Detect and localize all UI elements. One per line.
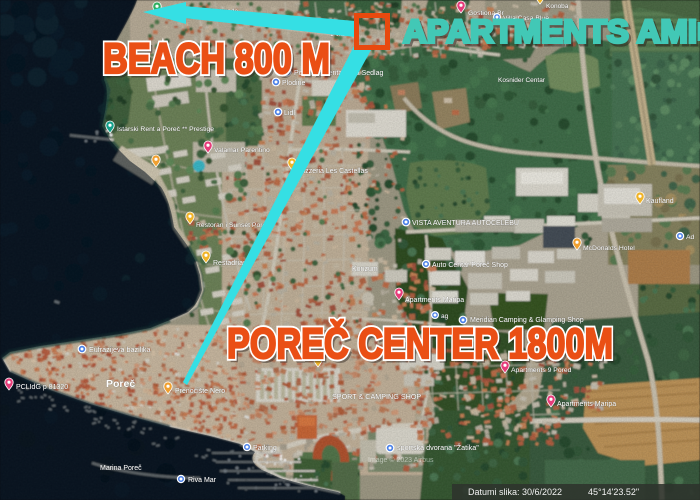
svg-text:Konoba: Konoba — [546, 3, 569, 10]
svg-text:Valamar Parentino: Valamar Parentino — [214, 147, 270, 154]
svg-text:Riva Mar: Riva Mar — [188, 477, 217, 484]
svg-text:Konzum: Konzum — [352, 266, 378, 273]
svg-text:APARTMENTS AMI: APARTMENTS AMI — [403, 14, 697, 50]
svg-text:Ad: Ad — [686, 234, 695, 241]
svg-text:VISTA AVENTURA AUTOCELEBU: VISTA AVENTURA AUTOCELEBU — [412, 220, 519, 227]
svg-text:Eufrazijeva bazilika: Eufrazijeva bazilika — [89, 345, 151, 354]
svg-text:Pizzeria Les Castellas: Pizzeria Les Castellas — [299, 168, 368, 175]
svg-text:45°14'23.52": 45°14'23.52" — [588, 487, 639, 497]
svg-text:Marina Poreč: Marina Poreč — [100, 465, 142, 472]
svg-text:Istarski Rent a Poreč ** Pres: Istarski Rent a Poreč ** Prestige — [117, 126, 214, 133]
svg-text:Kosnider Centar: Kosnider Centar — [498, 77, 546, 84]
svg-text:sportska dvorana "Žatika": sportska dvorana "Žatika" — [397, 443, 479, 452]
svg-text:Prenoćište Nero: Prenoćište Nero — [175, 388, 225, 395]
svg-text:Apartments Maripa: Apartments Maripa — [405, 297, 464, 304]
svg-text:SPORT & CAMPING SHOP: SPORT & CAMPING SHOP — [332, 392, 421, 401]
svg-text:Apartments Maripa: Apartments Maripa — [557, 401, 616, 408]
svg-text:BEACH 800 M: BEACH 800 M — [103, 35, 330, 83]
svg-text:PCLIdG p 81320: PCLIdG p 81320 — [16, 384, 68, 391]
svg-text:Restadrian: Restadrian — [213, 260, 247, 267]
svg-text:POREČ CENTER 1800M: POREČ CENTER 1800M — [227, 319, 613, 368]
svg-text:Lidl: Lidl — [284, 110, 295, 117]
svg-text:Restoran i Sunset Poreč: Restoran i Sunset Poreč — [196, 222, 270, 229]
svg-text:Poreč: Poreč — [106, 378, 135, 390]
svg-text:Parking: Parking — [253, 445, 277, 452]
svg-text:ag: ag — [441, 313, 449, 320]
svg-text:Image © 2023 Airbus: Image © 2023 Airbus — [368, 456, 434, 464]
svg-text:McDonalds Hotel: McDonalds Hotel — [583, 245, 635, 252]
svg-text:Auto Centar Poreč Shop: Auto Centar Poreč Shop — [432, 262, 508, 269]
svg-text:Kaufland: Kaufland — [646, 198, 674, 205]
svg-text:Datumi slika: 30/6/2022: Datumi slika: 30/6/2022 — [468, 487, 562, 497]
